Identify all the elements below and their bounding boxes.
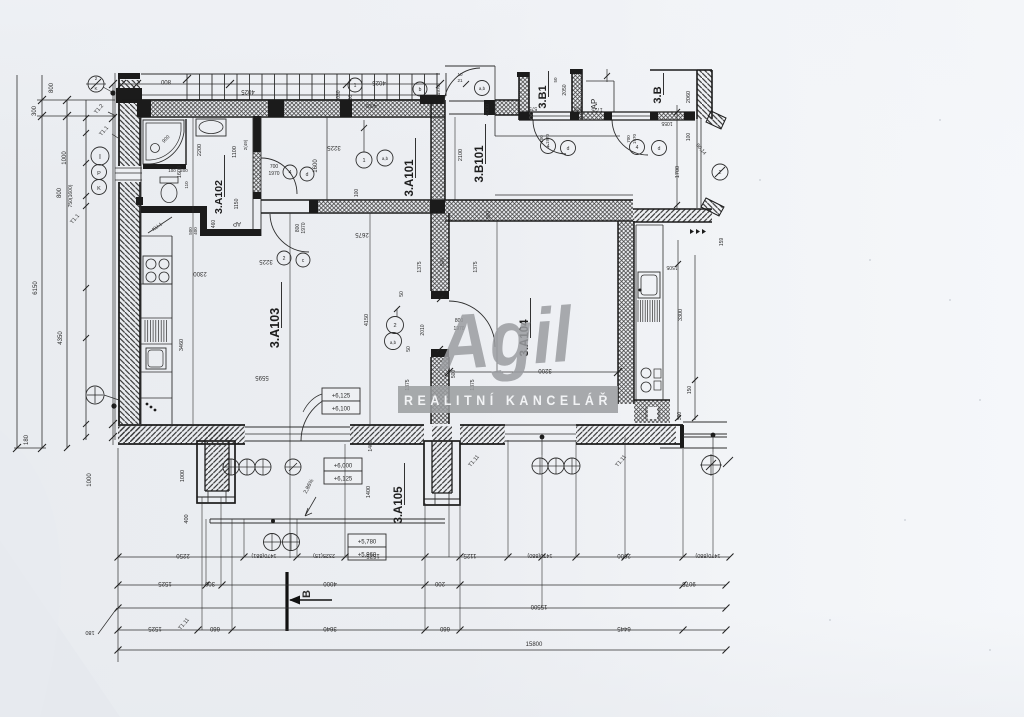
svg-text:d: d xyxy=(306,172,309,178)
svg-text:2010: 2010 xyxy=(420,324,426,335)
svg-text:21: 21 xyxy=(457,78,463,83)
svg-text:4350: 4350 xyxy=(58,331,64,345)
svg-text:1970: 1970 xyxy=(268,171,279,177)
svg-text:750(1600): 750(1600) xyxy=(68,184,74,207)
svg-text:3300: 3300 xyxy=(678,309,684,321)
svg-text:1125: 1125 xyxy=(463,552,477,558)
svg-text:460: 460 xyxy=(211,220,217,229)
svg-text:1970: 1970 xyxy=(632,133,637,144)
svg-text:4000: 4000 xyxy=(323,580,337,586)
svg-text:2: 2 xyxy=(719,170,722,176)
svg-text:1: 1 xyxy=(354,83,357,89)
svg-text:800: 800 xyxy=(57,187,63,198)
svg-text:P: P xyxy=(97,171,101,177)
svg-text:100: 100 xyxy=(354,189,360,198)
svg-text:+6,125: +6,125 xyxy=(334,477,353,483)
svg-text:a,b: a,b xyxy=(390,340,397,345)
svg-text:1505: 1505 xyxy=(666,264,677,270)
svg-text:1150: 1150 xyxy=(234,198,240,209)
svg-text:AP: AP xyxy=(233,220,241,226)
svg-text:1575: 1575 xyxy=(366,552,380,558)
svg-text:3640: 3640 xyxy=(323,625,337,631)
svg-text:B: B xyxy=(301,590,313,598)
svg-text:110: 110 xyxy=(184,181,189,189)
svg-text:2675: 2675 xyxy=(355,231,369,237)
svg-text:180: 180 xyxy=(85,629,94,635)
svg-text:4009: 4009 xyxy=(365,102,376,108)
svg-text:100: 100 xyxy=(686,133,692,142)
svg-text:1470(880): 1470(880) xyxy=(695,552,720,558)
svg-text:I: I xyxy=(99,154,101,161)
svg-text:1725: 1725 xyxy=(591,106,602,112)
svg-text:3.A101: 3.A101 xyxy=(404,159,416,197)
svg-text:1470(880): 1470(880) xyxy=(527,552,552,558)
svg-text:1700: 1700 xyxy=(675,166,681,178)
svg-text:2300: 2300 xyxy=(193,270,207,276)
svg-text:50: 50 xyxy=(399,291,405,297)
svg-text:2: 2 xyxy=(283,256,286,262)
svg-text:1375: 1375 xyxy=(473,261,479,272)
svg-text:2250: 2250 xyxy=(176,552,190,558)
svg-text:d: d xyxy=(658,146,661,152)
svg-text:1400: 1400 xyxy=(366,486,372,498)
svg-text:3.A105: 3.A105 xyxy=(393,486,405,524)
svg-text:+6,100: +6,100 xyxy=(332,407,351,413)
svg-text:2000: 2000 xyxy=(617,552,631,558)
svg-text:660: 660 xyxy=(209,625,220,631)
svg-text:4: 4 xyxy=(636,145,639,151)
svg-text:4025: 4025 xyxy=(241,88,255,94)
svg-text:3.B101: 3.B101 xyxy=(474,145,486,183)
svg-text:50: 50 xyxy=(553,77,558,83)
svg-text:1970: 1970 xyxy=(301,222,307,233)
svg-text:4: 4 xyxy=(289,170,292,176)
svg-text:700: 700 xyxy=(539,135,544,143)
svg-text:1375: 1375 xyxy=(417,261,423,272)
svg-text:1970: 1970 xyxy=(436,84,441,95)
svg-text:1: 1 xyxy=(362,158,365,164)
svg-text:2100: 2100 xyxy=(458,149,464,161)
svg-text:660: 660 xyxy=(439,625,450,631)
svg-text:300: 300 xyxy=(32,105,38,116)
svg-text:K: K xyxy=(94,86,97,91)
svg-text:6150: 6150 xyxy=(33,281,39,295)
svg-text:a,b: a,b xyxy=(479,86,486,91)
svg-text:+5,780: +5,780 xyxy=(358,540,377,546)
svg-text:3225: 3225 xyxy=(327,144,341,150)
svg-text:1000: 1000 xyxy=(62,151,68,165)
svg-text:3225: 3225 xyxy=(259,258,273,264)
svg-text:2050: 2050 xyxy=(562,84,568,95)
svg-text:2325(15): 2325(15) xyxy=(313,552,335,558)
svg-text:4025: 4025 xyxy=(372,79,386,85)
svg-text:100: 100 xyxy=(168,168,176,173)
svg-text:159: 159 xyxy=(719,238,725,247)
svg-text:575: 575 xyxy=(529,105,538,111)
svg-text:4000: 4000 xyxy=(485,104,491,116)
svg-text:15500: 15500 xyxy=(530,603,547,609)
svg-text:1100: 1100 xyxy=(232,146,238,158)
svg-text:4150: 4150 xyxy=(364,314,370,326)
svg-text:b: b xyxy=(419,87,422,93)
svg-text:3.A102: 3.A102 xyxy=(213,180,225,214)
svg-text:575: 575 xyxy=(574,105,583,111)
svg-text:180: 180 xyxy=(24,434,30,445)
svg-text:3.A103: 3.A103 xyxy=(268,308,282,348)
svg-text:150: 150 xyxy=(687,386,693,395)
svg-text:2200: 2200 xyxy=(197,144,203,156)
svg-text:9075: 9075 xyxy=(682,580,696,586)
svg-text:K: K xyxy=(97,186,101,192)
svg-text:700: 700 xyxy=(270,164,279,170)
svg-text:d: d xyxy=(567,146,570,152)
svg-text:200: 200 xyxy=(434,580,445,586)
svg-text:a,b: a,b xyxy=(382,156,389,161)
svg-text:Agil: Agil xyxy=(433,290,576,387)
svg-text:1470(881): 1470(881) xyxy=(251,552,276,558)
svg-text:+6,125: +6,125 xyxy=(332,394,351,400)
svg-text:1000: 1000 xyxy=(180,470,186,482)
svg-text:REALITNÍ KANCELÁŘ: REALITNÍ KANCELÁŘ xyxy=(404,393,612,408)
svg-text:1525: 1525 xyxy=(158,580,172,586)
svg-text:800: 800 xyxy=(160,78,171,84)
svg-text:2: 2 xyxy=(393,323,396,329)
svg-text:3460: 3460 xyxy=(179,339,185,351)
svg-text:1460: 1460 xyxy=(368,440,374,451)
svg-text:1600: 1600 xyxy=(313,159,319,173)
svg-text:900: 900 xyxy=(486,211,492,220)
svg-text:+6,000: +6,000 xyxy=(334,464,353,470)
svg-text:1525: 1525 xyxy=(148,625,162,631)
svg-text:800: 800 xyxy=(49,82,55,93)
svg-text:1970: 1970 xyxy=(545,133,550,144)
svg-text:50: 50 xyxy=(406,346,412,352)
svg-text:6445: 6445 xyxy=(617,625,631,631)
svg-text:2(49): 2(49) xyxy=(243,139,248,150)
svg-text:5595: 5595 xyxy=(255,374,269,380)
svg-text:1055: 1055 xyxy=(661,120,672,126)
svg-text:2060: 2060 xyxy=(686,91,692,103)
svg-text:1600: 1600 xyxy=(177,166,183,178)
svg-text:700: 700 xyxy=(626,135,631,143)
svg-text:1000: 1000 xyxy=(87,473,93,487)
svg-text:15800: 15800 xyxy=(526,642,543,648)
svg-text:400: 400 xyxy=(184,514,190,523)
svg-text:3.B1: 3.B1 xyxy=(537,85,549,108)
svg-text:400: 400 xyxy=(193,227,198,235)
svg-text:3.B: 3.B xyxy=(652,86,664,103)
